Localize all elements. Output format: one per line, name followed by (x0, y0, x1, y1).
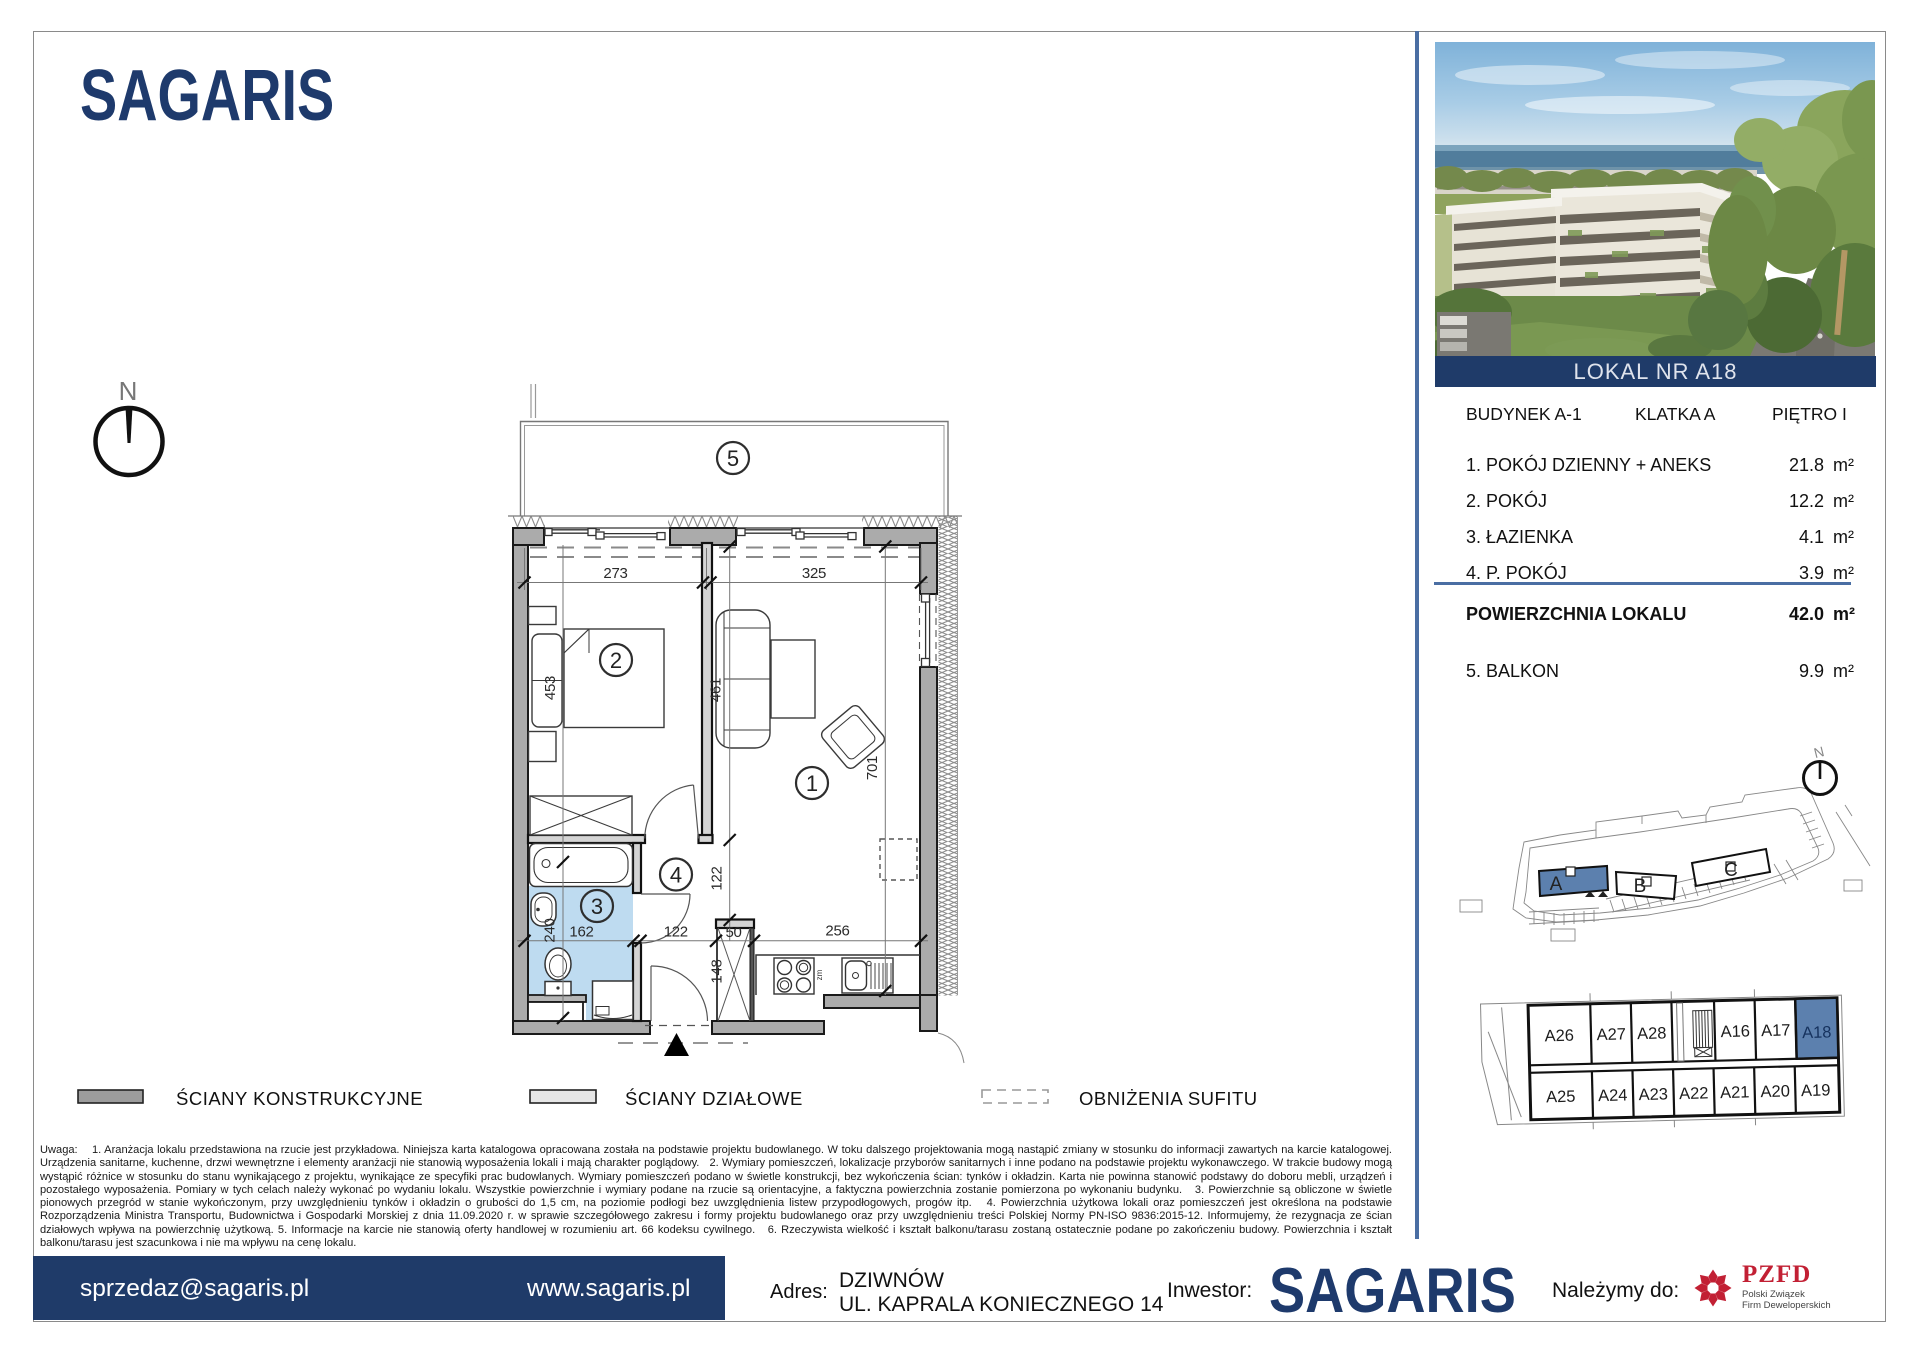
svg-text:50: 50 (725, 924, 741, 941)
svg-text:Firm Deweloperskich: Firm Deweloperskich (1742, 1300, 1831, 1311)
svg-text:4: 4 (670, 863, 682, 888)
svg-text:273: 273 (603, 565, 627, 582)
svg-text:C: C (1724, 860, 1738, 881)
svg-text:zm: zm (815, 969, 824, 980)
svg-text:A27: A27 (1596, 1025, 1626, 1044)
svg-text:3: 3 (591, 894, 603, 919)
svg-text:A16: A16 (1720, 1022, 1750, 1041)
svg-text:A: A (1550, 874, 1563, 895)
svg-text:A23: A23 (1638, 1085, 1668, 1104)
svg-text:5: 5 (727, 446, 739, 471)
svg-text:A18: A18 (1802, 1023, 1832, 1042)
svg-text:325: 325 (802, 565, 826, 582)
svg-text:PZFD: PZFD (1742, 1261, 1811, 1288)
svg-text:N: N (1812, 743, 1826, 761)
svg-text:A24: A24 (1598, 1086, 1628, 1105)
svg-text:1: 1 (806, 771, 818, 796)
svg-text:256: 256 (825, 923, 849, 940)
svg-text:162: 162 (569, 924, 593, 941)
svg-text:122: 122 (709, 866, 726, 890)
svg-text:A17: A17 (1761, 1021, 1791, 1040)
svg-text:B: B (1634, 876, 1647, 897)
svg-text:240: 240 (542, 918, 559, 942)
svg-text:148: 148 (709, 959, 726, 983)
svg-text:A25: A25 (1546, 1088, 1576, 1107)
svg-text:A21: A21 (1720, 1083, 1750, 1102)
svg-text:A28: A28 (1637, 1024, 1667, 1043)
svg-text:A19: A19 (1801, 1081, 1831, 1100)
svg-text:461: 461 (708, 678, 725, 702)
svg-text:A20: A20 (1760, 1082, 1790, 1101)
svg-text:N: N (119, 376, 138, 406)
svg-text:122: 122 (664, 924, 688, 941)
svg-text:Polski Związek: Polski Związek (1742, 1289, 1805, 1300)
svg-text:2: 2 (610, 648, 622, 673)
svg-text:701: 701 (864, 756, 881, 780)
svg-text:A22: A22 (1679, 1084, 1709, 1103)
svg-text:453: 453 (542, 676, 559, 700)
svg-text:A26: A26 (1544, 1027, 1574, 1046)
